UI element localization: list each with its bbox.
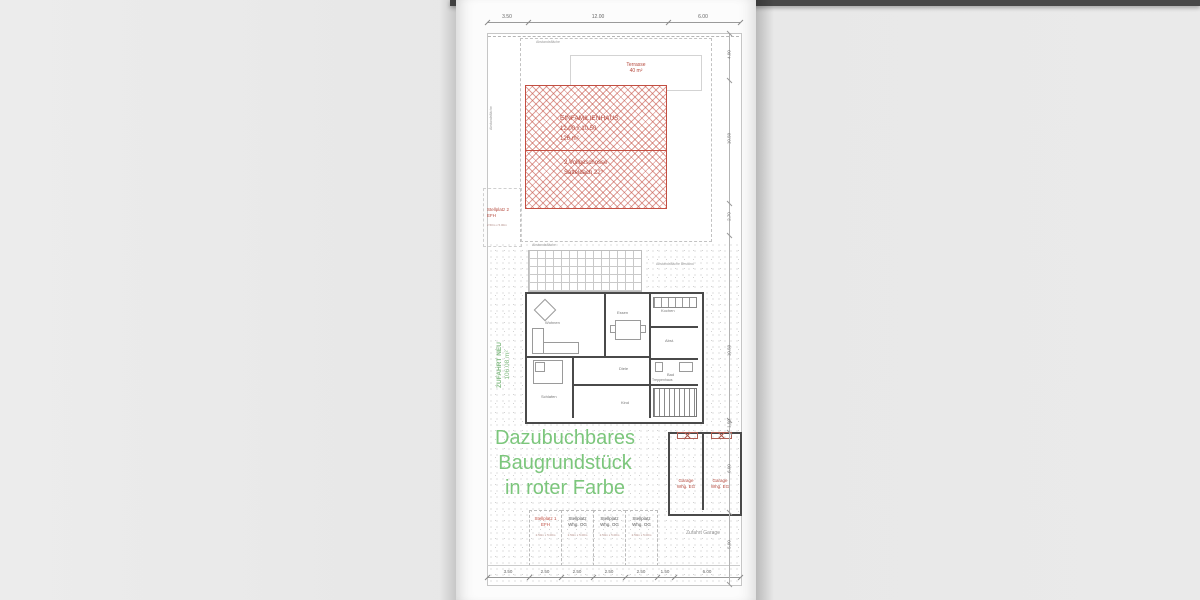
stellplatz-2-line2: EFH bbox=[487, 213, 509, 219]
driveway-area: 106.08 m² bbox=[504, 330, 512, 400]
stall-3: Stellplatz Whg. OG 2.50m x 5.00m bbox=[593, 510, 626, 566]
right-dim-4: 10.50 bbox=[727, 340, 732, 362]
stall-1-label: Stellplatz 1 EFH bbox=[530, 516, 561, 527]
right-dim-2: 10.50 bbox=[727, 128, 732, 150]
fence-line bbox=[487, 565, 740, 566]
stall-1: Stellplatz 1 EFH 2.50m x 5.00m bbox=[529, 510, 562, 566]
bottom-dim-3: 2.50 bbox=[573, 569, 582, 574]
house-divider-line bbox=[526, 150, 666, 151]
bathtub bbox=[679, 362, 693, 372]
room-kind: Kind bbox=[621, 400, 629, 405]
stall-1-line1: Stellplatz 1 bbox=[530, 516, 561, 522]
right-sheet-shadow bbox=[756, 0, 774, 600]
garage-1-line2: Whg. EG bbox=[670, 484, 702, 490]
stall-1-note: 2.50m x 5.00m bbox=[530, 533, 561, 537]
stall-4: Stellplatz Whg. OG 2.50m x 5.00m bbox=[625, 510, 658, 566]
stellplatz-2-label: Stellplatz 2 EFH bbox=[487, 207, 509, 218]
table-diamond bbox=[534, 299, 557, 322]
wall bbox=[649, 384, 698, 386]
right-dim-6: 6.00 bbox=[727, 458, 732, 480]
staircase bbox=[653, 388, 697, 417]
room-abst: Abst. bbox=[665, 338, 674, 343]
plot-boundary-dashed bbox=[488, 36, 739, 37]
right-dim-1: 4.00 bbox=[727, 44, 732, 66]
site-plan-screenshot: 3.50 12.00 6.00 Abstandsfläche Abstandsf… bbox=[0, 0, 1200, 600]
stall-4-note: 2.50m x 5.00m bbox=[626, 533, 657, 537]
top-dim-2: 12.00 bbox=[592, 14, 605, 20]
wall bbox=[527, 356, 651, 358]
abstand-label-left: Abstandsfläche bbox=[489, 106, 493, 130]
house-text-block: EINFAMILIENHAUS 12.00 x 10.50 126 m² bbox=[560, 114, 619, 144]
garage-1-label: Garage Whg. EG bbox=[670, 478, 702, 489]
sofa bbox=[543, 342, 579, 354]
stellplatz-2-box: Stellplatz 2 EFH 2.50m x 5.00m bbox=[483, 188, 522, 247]
right-dimension-line bbox=[729, 33, 730, 584]
bottom-dim-1: 3.50 bbox=[504, 569, 513, 574]
green-annotation-line1: Dazubuchbares bbox=[490, 426, 640, 451]
room-schlafen: Schlafen bbox=[541, 394, 557, 399]
stall-2-label: Stellplatz Whg. OG bbox=[562, 516, 593, 527]
room-treppenhaus: Treppenhaus bbox=[652, 378, 673, 382]
stall-2: Stellplatz Whg. OG 2.50m x 5.00m bbox=[561, 510, 594, 566]
chair bbox=[640, 325, 646, 333]
top-dimension-line bbox=[487, 22, 740, 23]
house-name: EINFAMILIENHAUS bbox=[560, 114, 619, 124]
chair bbox=[610, 325, 616, 333]
house-roof: Satteldach 22° bbox=[564, 168, 607, 178]
right-dim-7: 5.00 bbox=[727, 534, 732, 556]
terrace-label: Terrasse 40 m² bbox=[571, 62, 701, 74]
right-dim-3: 2.70 bbox=[727, 206, 732, 228]
left-sheet-shadow bbox=[440, 0, 456, 600]
wall bbox=[649, 326, 698, 328]
stall-3-label: Stellplatz Whg. OG bbox=[594, 516, 625, 527]
terrace-area: 40 m² bbox=[571, 68, 701, 74]
abstand-label-top: Abstandsfläche bbox=[536, 40, 560, 44]
dining-table bbox=[615, 320, 641, 340]
garage-2-label: Garage Whg. EG bbox=[704, 478, 736, 489]
abstand-label-bestand: Abstandsfläche Bestand bbox=[656, 262, 694, 266]
wall bbox=[649, 294, 651, 418]
abstand-label-mid: Abstandsfläche bbox=[532, 243, 556, 247]
planned-house: EINFAMILIENHAUS 12.00 x 10.50 126 m² 2 V… bbox=[525, 85, 667, 209]
bottom-dim-2: 2.50 bbox=[541, 569, 550, 574]
wc bbox=[655, 362, 663, 372]
room-wohnen: Wohnen bbox=[545, 320, 560, 325]
dim-tick bbox=[738, 20, 744, 26]
top-dim-1: 3.50 bbox=[502, 14, 512, 20]
stellplatz-2-line1: Stellplatz 2 bbox=[487, 207, 509, 213]
wall bbox=[604, 294, 606, 356]
right-dim-5: 1.50 bbox=[727, 413, 732, 435]
bottom-dim-5: 2.50 bbox=[637, 569, 646, 574]
room-essen: Essen bbox=[617, 310, 628, 315]
pillow bbox=[535, 362, 545, 372]
stall-3-line2: Whg. OG bbox=[594, 522, 625, 528]
garage-door-1 bbox=[677, 432, 698, 439]
bottom-dim-6: 1.50 bbox=[661, 569, 670, 574]
garage-divider-wall bbox=[702, 434, 704, 510]
garage-2-line2: Whg. EG bbox=[704, 484, 736, 490]
stall-4-line2: Whg. OG bbox=[626, 522, 657, 528]
drawing-sheet: 3.50 12.00 6.00 Abstandsfläche Abstandsf… bbox=[456, 0, 756, 600]
wall bbox=[572, 384, 651, 386]
stall-1-line2: EFH bbox=[530, 522, 561, 528]
bottom-dim-7: 6.00 bbox=[703, 569, 712, 574]
house-floors: 2 Vollgeschosse bbox=[564, 158, 607, 168]
green-annotation-line2: Baugrundstück bbox=[490, 451, 640, 476]
driveway-name: ZUFAHRT NEU bbox=[496, 330, 504, 400]
top-dim-3: 6.00 bbox=[698, 14, 708, 20]
room-diele: Diele bbox=[619, 366, 628, 371]
house-size: 12.00 x 10.50 bbox=[560, 124, 619, 134]
house-area: 126 m² bbox=[560, 134, 619, 144]
stellplatz-2-note: 2.50m x 5.00m bbox=[487, 223, 507, 227]
house-spec-block: 2 Vollgeschosse Satteldach 22° bbox=[564, 158, 607, 178]
stall-2-note: 2.50m x 5.00m bbox=[562, 533, 593, 537]
wall bbox=[649, 358, 698, 360]
stall-3-note: 2.50m x 5.00m bbox=[594, 533, 625, 537]
room-kochen: Kochen bbox=[661, 308, 675, 313]
bottom-dimension-line bbox=[487, 577, 740, 578]
existing-building: Wohnen Essen Kochen Abst. Diele Bad Schl… bbox=[525, 292, 704, 424]
stall-4-label: Stellplatz Whg. OG bbox=[626, 516, 657, 527]
driveway-label: ZUFAHRT NEU 106.08 m² bbox=[496, 330, 511, 400]
bottom-dim-4: 2.50 bbox=[605, 569, 614, 574]
pergola-grid bbox=[528, 250, 642, 292]
green-annotation: Dazubuchbares Baugrundstück in roter Far… bbox=[490, 426, 640, 501]
stall-2-line2: Whg. OG bbox=[562, 522, 593, 528]
room-bad: Bad bbox=[667, 372, 674, 377]
kitchen-counter bbox=[653, 297, 697, 308]
green-annotation-line3: in roter Farbe bbox=[490, 476, 640, 501]
wall bbox=[572, 356, 574, 418]
